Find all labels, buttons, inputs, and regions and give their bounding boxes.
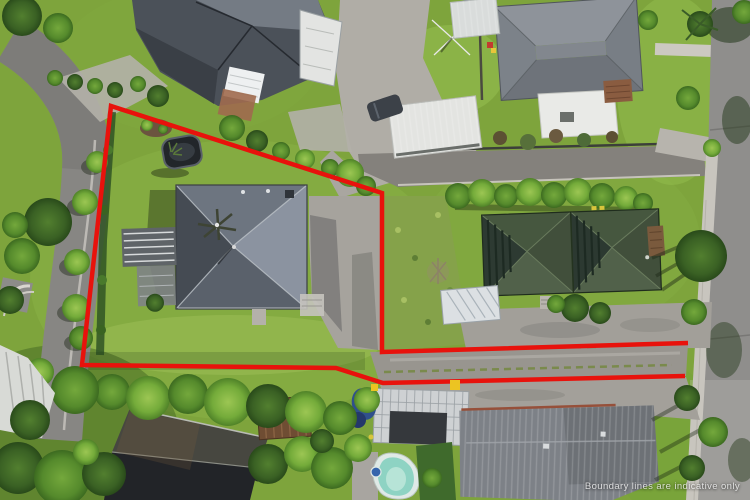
house-bottom-right [456,399,661,500]
boundary-marker-1 [450,380,460,390]
spa-pool [371,467,381,477]
garage [388,96,482,158]
main-house [176,185,307,309]
glasshouse [373,388,469,445]
carport [441,286,501,325]
chimney [285,190,294,198]
aerial-property-photo: Boundary lines are indicative only [0,0,750,500]
aerial-scene [0,0,750,500]
boundary-marker-2 [371,384,378,391]
house-green-roof [481,204,661,296]
toy-yellow [491,48,496,53]
toy-red [487,42,493,48]
